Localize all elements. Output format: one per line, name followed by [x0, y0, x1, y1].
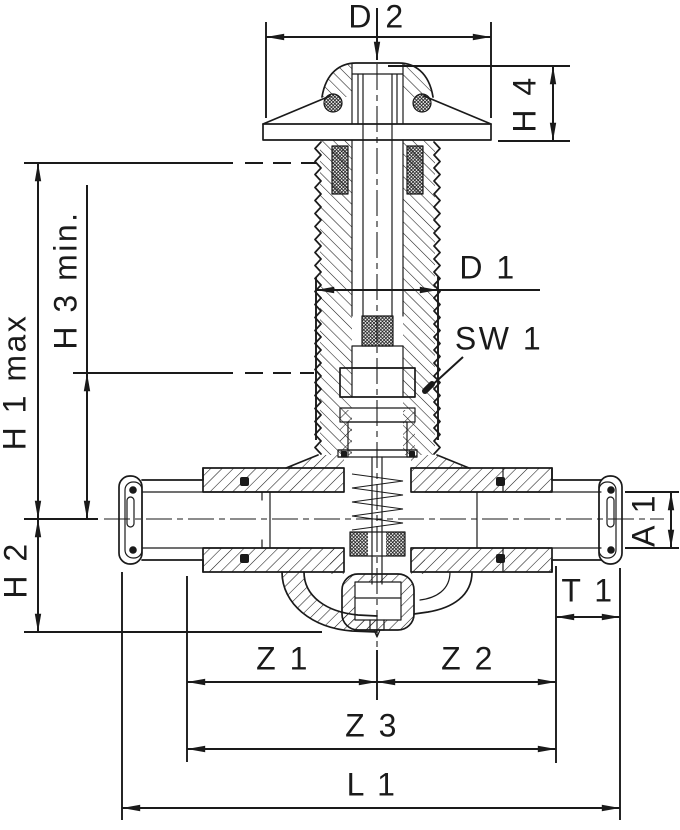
dimension-h3: H 3 min. [47, 185, 87, 519]
dimension-h3-label: H 3 min. [47, 210, 83, 349]
dimension-z1-label: Z 1 [256, 640, 310, 676]
dimension-h2: H 2 [0, 519, 38, 632]
dimension-t1: T 1 [556, 566, 620, 820]
valve-technical-drawing: D 2 H 4 H 1 max H 3 min. H 2 [0, 0, 680, 830]
hex-left-bottom-hatch [203, 548, 344, 572]
dimension-a1: A 1 [625, 492, 679, 548]
dimension-h2-label: H 2 [0, 541, 33, 598]
dimension-l1-label: L 1 [347, 766, 398, 802]
bonnet-seal-right [407, 146, 423, 194]
hex-right-top-hatch [411, 468, 552, 492]
body-left-lower-hatch [330, 548, 344, 574]
bonnet-seal-left [332, 146, 348, 194]
cartridge-right-hatch [403, 410, 415, 455]
nub-center-mask [355, 582, 401, 620]
dimension-z2-label: Z 2 [441, 640, 495, 676]
dimension-sw1-label: SW 1 [455, 320, 543, 356]
dimension-d2-label: D 2 [348, 0, 405, 34]
dimension-a1-label: A 1 [625, 493, 661, 547]
hex-left-top-hatch [203, 468, 344, 492]
cartridge-left-hatch [340, 410, 352, 455]
dimension-d1-label: D 1 [459, 249, 516, 285]
dimension-h1-label: H 1 max [0, 314, 32, 451]
dimension-z3-label: Z 3 [345, 707, 399, 743]
dimension-z3: Z 3 [187, 707, 556, 749]
dimension-t1-label: T 1 [561, 572, 614, 608]
technical-drawing-page: D 2 H 4 H 1 max H 3 min. H 2 [0, 0, 680, 830]
dimension-h4-label: H 4 [506, 75, 542, 132]
dimension-h1: H 1 max [0, 163, 38, 519]
dimension-z2: Z 2 [377, 640, 556, 682]
dimension-sw1: SW 1 [425, 320, 543, 391]
hex-right-bottom-hatch [411, 548, 552, 572]
body-right-lower-hatch [411, 548, 425, 574]
